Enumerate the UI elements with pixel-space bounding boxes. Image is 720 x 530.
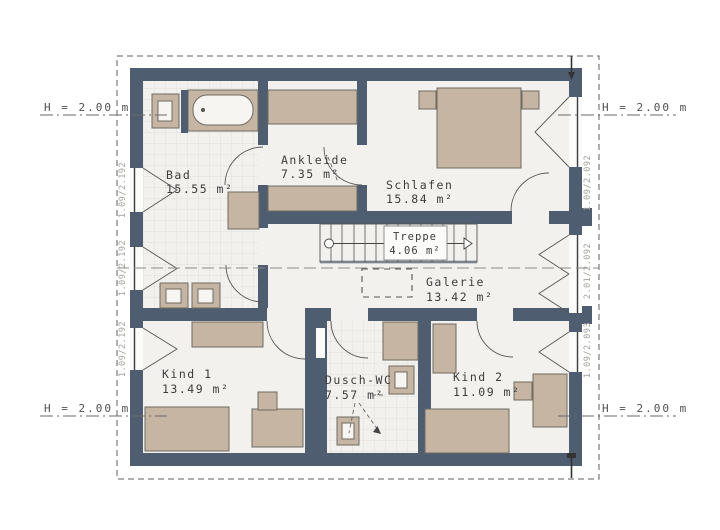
double-bed-icon: [437, 88, 521, 168]
kind2-wardrobe: [433, 324, 456, 373]
wardrobe-bottom: [268, 186, 357, 211]
shower-icon: [383, 322, 418, 360]
room-label-bad: Bad: [166, 168, 191, 182]
room-label-duschwc: Dusch-WC: [325, 373, 392, 387]
room-label-treppe: Treppe: [393, 231, 437, 243]
room-label-kind1: Kind 1: [162, 367, 213, 381]
room-label-kind2: Kind 2: [453, 370, 504, 384]
bath-cabinet: [228, 192, 259, 229]
kind2-desk: [533, 374, 567, 427]
room-area-treppe: 4.06 m²: [389, 245, 440, 257]
wardrobe-top: [268, 90, 357, 124]
kind1-chair: [258, 392, 277, 410]
room-area-kind2: 11.09 m²: [453, 385, 520, 399]
dim-left-1: 1.09/2.192: [118, 162, 128, 218]
room-area-schlafen: 15.84 m²: [386, 192, 453, 206]
bathtub-drain: [201, 108, 205, 112]
dim-right-1: 1.09/2.092: [583, 155, 593, 211]
kind2-bed-icon: [425, 409, 509, 453]
dim-left-2: 1.09/2.192: [118, 240, 128, 296]
duct-niche: [316, 328, 325, 358]
dim-right-3: 1.09/2.093: [583, 322, 593, 378]
height-label-top-left: H = 2.00 m: [44, 101, 130, 114]
height-label-bottom-left: H = 2.00 m: [44, 402, 130, 415]
room-label-schlafen: Schlafen: [386, 178, 453, 192]
room-area-galerie: 13.42 m²: [426, 290, 493, 304]
room-label-galerie: Galerie: [426, 275, 485, 289]
bathtub-halfwall: [181, 90, 188, 133]
nightstand-left: [419, 91, 436, 109]
room-area-ankleide: 7.35 m²: [281, 167, 340, 181]
kind1-wardrobe: [192, 322, 263, 347]
room-area-kind1: 13.49 m²: [162, 382, 229, 396]
downspout-bottom-icon: [567, 453, 576, 458]
room-label-ankleide: Ankleide: [281, 153, 348, 167]
dim-right-2: 2.01/2.092: [583, 243, 593, 299]
kind1-desk: [252, 409, 303, 447]
stair-start-marker: [325, 239, 334, 248]
height-label-bottom-right: H = 2.00 m: [602, 402, 688, 415]
floor-plan-drawing: Bad 15.55 m² Ankleide 7.35 m² Schlafen 1…: [0, 0, 720, 530]
nightstand-right: [522, 91, 539, 109]
floor-plan: Bad 15.55 m² Ankleide 7.35 m² Schlafen 1…: [0, 0, 720, 530]
room-area-bad: 15.55 m²: [166, 182, 233, 196]
kind1-bed-icon: [145, 407, 229, 451]
schlafen-furniture: [419, 88, 539, 168]
height-label-top-right: H = 2.00 m: [602, 101, 688, 114]
dim-left-3: 1.09/2.192: [118, 321, 128, 377]
